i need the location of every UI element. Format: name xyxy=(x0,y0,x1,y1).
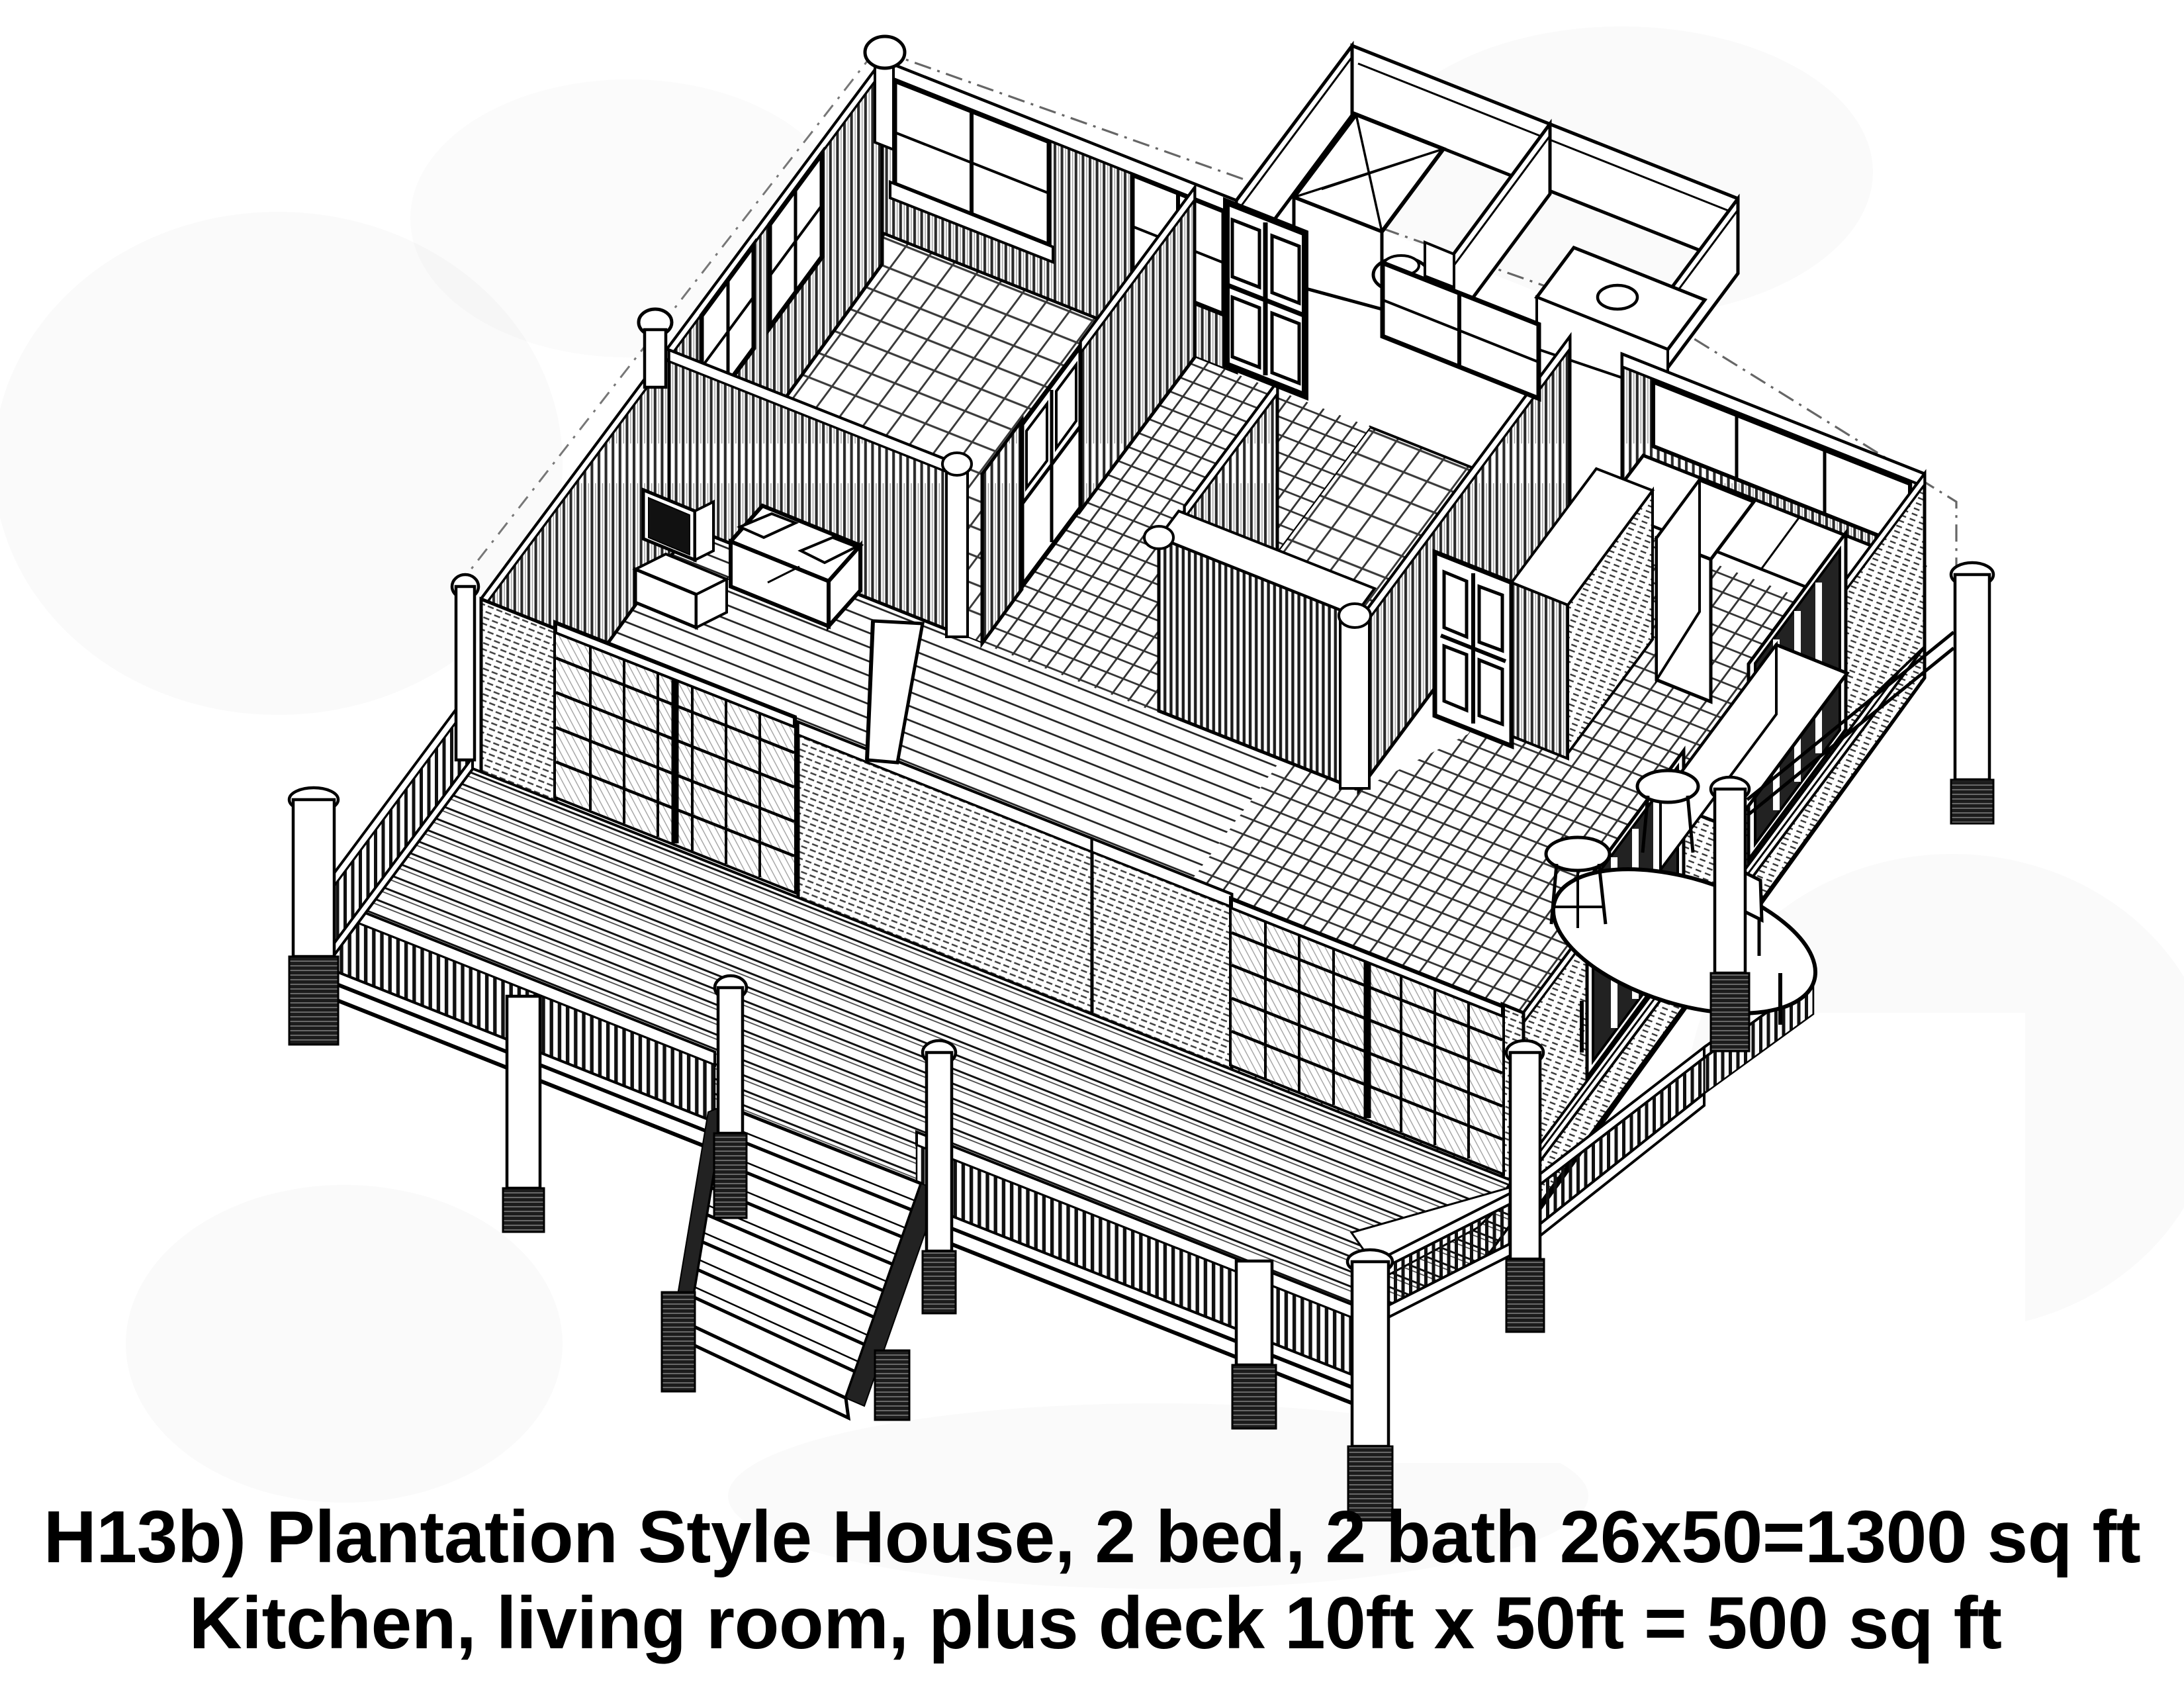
svg-text:Kitchen, living room, plus de: Kitchen, living room, plus deck 10ft x 5… xyxy=(189,1582,2002,1664)
svg-text:H13b) Plantation Style House,: H13b) Plantation Style House, 2 bed, 2 b… xyxy=(44,1496,2141,1578)
